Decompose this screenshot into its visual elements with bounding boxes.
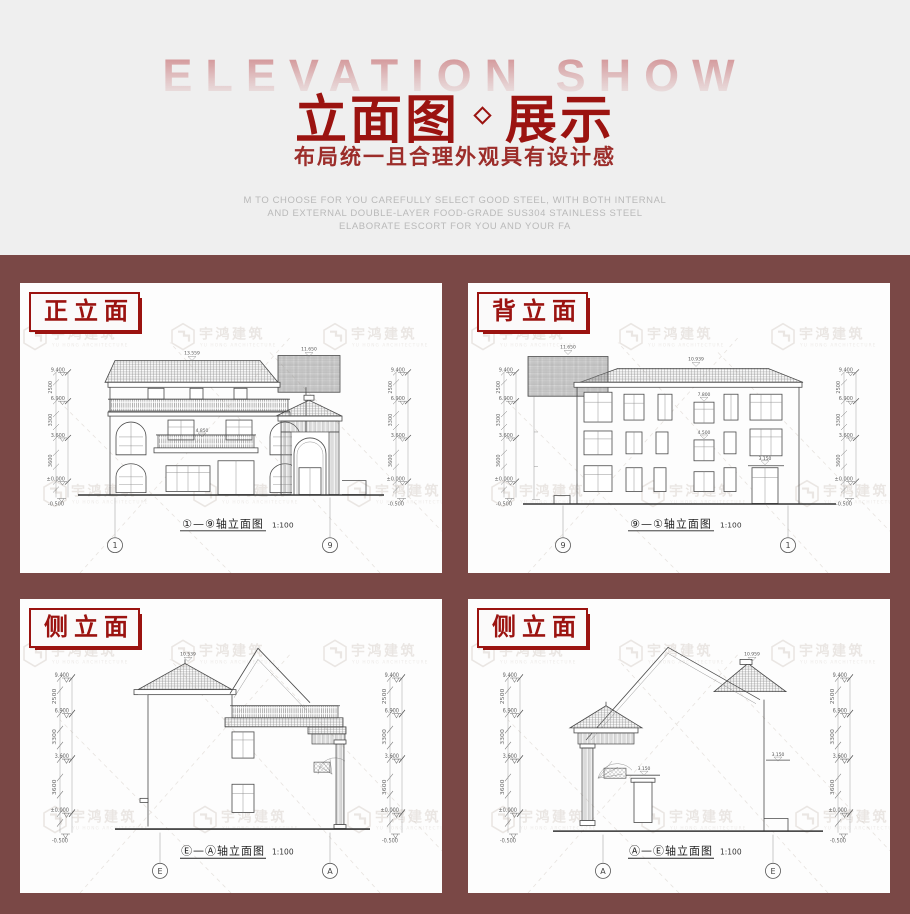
panel-label-front: 正立面	[29, 292, 140, 332]
rear-roof	[714, 663, 786, 691]
svg-text:10.939: 10.939	[688, 356, 704, 362]
front-elevation-building: 4.850	[78, 347, 384, 495]
description-line: AND EXTERNAL DOUBLE-LAYER FOOD-GRADE SUS…	[0, 207, 910, 220]
caption-text: ①—⑨轴立面图	[182, 516, 264, 530]
panel-label-text: 侧立面	[44, 614, 134, 641]
elevation-gallery: 4.850	[0, 255, 910, 914]
axis-bubble: 9	[556, 538, 571, 553]
side-elevation-ea-building: 10.539	[115, 648, 370, 829]
axis-bubble: 1	[108, 538, 123, 553]
svg-text:10.959: 10.959	[744, 651, 760, 657]
caption-text: Ⓐ—Ⓔ轴立面图	[629, 844, 713, 858]
main-roof	[105, 360, 278, 382]
svg-text:A: A	[327, 867, 333, 876]
panel-side-elevation-ea: 10.539 Ⓔ—Ⓐ轴立面图 1:100 E	[20, 599, 442, 893]
dim-label: 11.650	[560, 345, 576, 355]
page: ELEVATION SHOW 立面图 展示 布局统一且合理外观具有设计感 M T…	[0, 0, 910, 914]
caption: Ⓔ—Ⓐ轴立面图 1:100 E A	[153, 833, 338, 879]
panel-label-side-ae: 侧立面	[477, 608, 588, 648]
description-paragraph: M TO CHOOSE FOR YOU CAREFULLY SELECT GOO…	[0, 194, 910, 233]
dim-label: 3.150	[638, 766, 651, 775]
svg-text:10.539: 10.539	[180, 651, 196, 657]
svg-text:1: 1	[785, 541, 790, 550]
svg-text:9: 9	[327, 541, 332, 550]
description-line: ELABORATE ESCORT FOR YOU AND YOUR FA	[0, 220, 910, 233]
pavilion-roof	[138, 663, 232, 689]
svg-text:E: E	[770, 867, 775, 876]
panel-front-elevation: 4.850	[20, 283, 442, 573]
panel-side-elevation-ae: 3.150 3.150	[468, 599, 890, 893]
watermark	[642, 806, 747, 832]
svg-text:1: 1	[112, 541, 117, 550]
pedestal	[634, 782, 652, 822]
panel-back-elevation: 7.800 4.500	[468, 283, 890, 573]
caption-text: Ⓔ—Ⓐ轴立面图	[181, 844, 265, 858]
window	[116, 464, 146, 493]
panel-label-text: 侧立面	[492, 614, 582, 641]
panel-label-side-ea: 侧立面	[29, 608, 140, 648]
dim-label: 10.939	[688, 356, 704, 366]
balcony-balustrade	[232, 706, 338, 718]
watermark	[324, 640, 429, 666]
balcony-balustrade	[158, 435, 254, 448]
watermark	[772, 324, 876, 350]
gate-pilaster	[281, 432, 291, 495]
back-elevation-building: 7.800 4.500	[523, 345, 836, 504]
svg-text:E: E	[157, 867, 162, 876]
tower-roof	[528, 356, 608, 396]
panel-label-text: 正立面	[44, 298, 134, 325]
axis-bubble: 9	[323, 538, 338, 553]
caption-scale: 1:100	[720, 848, 742, 857]
dimension-stack-left	[495, 367, 519, 507]
porch-column	[336, 744, 344, 825]
gate-pilaster	[329, 432, 339, 495]
caption: ⑨—①轴立面图 1:100 9 1	[556, 505, 796, 552]
porch-column	[582, 748, 593, 820]
watermark	[172, 324, 276, 350]
panel-label-text: 背立面	[492, 298, 582, 325]
porch-roof	[570, 706, 642, 728]
side-elevation-ae-building: 3.150 3.150	[553, 647, 823, 831]
watermark	[620, 640, 725, 666]
caption: ①—⑨轴立面图 1:100 1 9	[108, 498, 338, 553]
diamond-separator-icon	[473, 106, 491, 124]
watermark	[620, 324, 724, 350]
header-banner: ELEVATION SHOW 立面图 展示 布局统一且合理外观具有设计感 M T…	[0, 0, 910, 255]
main-roof	[580, 368, 803, 382]
window	[116, 422, 146, 455]
watermark	[324, 324, 428, 350]
svg-text:13.559: 13.559	[184, 351, 200, 357]
window	[624, 394, 644, 420]
watermark	[772, 640, 877, 666]
porch-roof	[308, 727, 346, 734]
tower-roof	[278, 356, 340, 393]
dim-label: 7.800	[698, 392, 711, 401]
caption-scale: 1:100	[720, 520, 742, 529]
balcony-cornice	[225, 718, 343, 727]
dim-label: 3.150	[759, 456, 772, 465]
panel-label-back: 背立面	[477, 292, 588, 332]
axis-bubble: E	[766, 863, 781, 878]
svg-text:11.650: 11.650	[301, 347, 317, 353]
axis-bubble: A	[323, 863, 338, 878]
svg-text:11.650: 11.650	[560, 345, 576, 351]
page-subtitle: 布局统一且合理外观具有设计感	[0, 141, 910, 171]
caption-scale: 1:100	[272, 520, 294, 529]
caption: Ⓐ—Ⓔ轴立面图 1:100 A E	[596, 835, 781, 879]
axis-bubble: E	[153, 863, 168, 878]
svg-text:A: A	[600, 867, 606, 876]
description-line: M TO CHOOSE FOR YOU CAREFULLY SELECT GOO…	[0, 194, 910, 207]
caption-text: ⑨—①轴立面图	[630, 516, 712, 530]
dim-label: 11.650	[301, 347, 317, 357]
caption-scale: 1:100	[272, 848, 294, 857]
svg-text:9: 9	[560, 541, 565, 550]
dimension-stack-left	[47, 367, 71, 507]
axis-bubble: 1	[781, 538, 796, 553]
axis-bubble: A	[596, 863, 611, 878]
parapet-balustrade	[110, 399, 288, 411]
dim-label: 13.559	[184, 351, 200, 361]
